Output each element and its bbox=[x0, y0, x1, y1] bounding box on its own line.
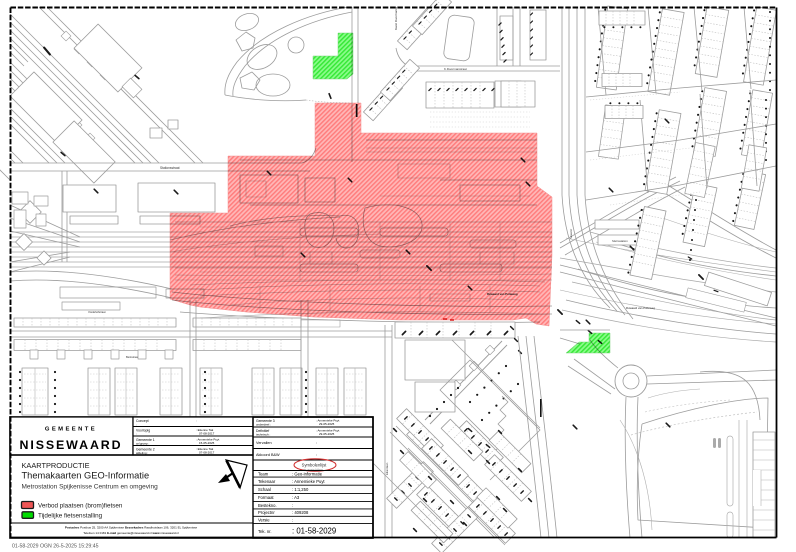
svg-text:NISSEWAARD: NISSEWAARD bbox=[20, 438, 123, 452]
svg-text:Postadres Postbus 25, 3200 AA: Postadres Postbus 25, 3200 AA Spijkeniss… bbox=[65, 526, 198, 530]
svg-text:: 01-58-2029: : 01-58-2029 bbox=[292, 527, 336, 536]
svg-text:GEMEENTE: GEMEENTE bbox=[45, 427, 97, 433]
svg-text:Team: Team bbox=[258, 471, 269, 476]
svg-text::: : bbox=[316, 441, 317, 445]
svg-text:Themakaarten GEO-Informatie: Themakaarten GEO-Informatie bbox=[22, 471, 150, 481]
svg-text:Vervallen: Vervallen bbox=[256, 441, 272, 445]
svg-text:: 1:1,250: : 1:1,250 bbox=[292, 487, 309, 492]
svg-text:Tijdelijke fietsenstalling: Tijdelijke fietsenstalling bbox=[38, 513, 103, 520]
svg-text:Bestekno.: Bestekno. bbox=[258, 503, 277, 508]
svg-text:Voorlopig: Voorlopig bbox=[136, 429, 150, 433]
svg-text:K.Doormanstraat: K.Doormanstraat bbox=[444, 67, 467, 71]
svg-text:Metrostation: Metrostation bbox=[612, 239, 628, 243]
svg-text:Formaat: Formaat bbox=[258, 495, 274, 500]
svg-text::: : bbox=[292, 518, 293, 523]
svg-text:Tekenaar: Tekenaar bbox=[258, 479, 276, 484]
svg-text:onderdeel :: onderdeel : bbox=[256, 423, 271, 427]
svg-text:cn/groep :: cn/groep : bbox=[136, 442, 150, 446]
svg-text:Karel Doormanstr: Karel Doormanstr bbox=[394, 6, 398, 30]
svg-text:KAARTPRODUCTIE: KAARTPRODUCTIE bbox=[22, 461, 90, 470]
svg-text:Concept: Concept bbox=[136, 419, 149, 423]
svg-text:: A3: : A3 bbox=[292, 495, 300, 500]
svg-text:Metrostation Spijkenisse Centr: Metrostation Spijkenisse Centrum en omge… bbox=[22, 484, 159, 491]
svg-text:07-08-2017: 07-08-2017 bbox=[199, 451, 215, 455]
svg-text:Ruwaard van Putteweg: Ruwaard van Putteweg bbox=[487, 292, 518, 296]
svg-text:Eikenlaan: Eikenlaan bbox=[385, 462, 389, 475]
svg-text:Schaal: Schaal bbox=[258, 487, 271, 492]
svg-text:29-05-2025: 29-05-2025 bbox=[319, 422, 335, 426]
svg-text:Projectnr: Projectnr bbox=[258, 510, 275, 515]
svg-text:Nieuwstr: Nieuwstr bbox=[569, 229, 573, 239]
svg-text::: : bbox=[316, 453, 317, 457]
svg-text:Versie: Versie bbox=[258, 518, 270, 523]
svg-text:Vredehofstraat: Vredehofstraat bbox=[88, 310, 106, 314]
svg-text:Telefoon 14 0181 E-mail gemee: Telefoon 14 0181 E-mail gemeente@nissewa… bbox=[83, 531, 179, 535]
svg-text:: Annemieke Puyt: : Annemieke Puyt bbox=[292, 479, 325, 484]
svg-text:07-08-2017: 07-08-2017 bbox=[199, 432, 215, 436]
svg-text:Verbod plaatsen (brom)fietsen: Verbod plaatsen (brom)fietsen bbox=[38, 503, 123, 510]
svg-text:29-05-2025: 29-05-2025 bbox=[319, 432, 335, 436]
svg-text:: 409208: : 409208 bbox=[292, 510, 309, 515]
svg-text:15-05-2025: 15-05-2025 bbox=[199, 441, 215, 445]
svg-text:Tek. nr.: Tek. nr. bbox=[258, 529, 272, 534]
svg-text:: Geo-informatie: : Geo-informatie bbox=[292, 471, 323, 476]
svg-text:Symbolenlijst: Symbolenlijst bbox=[302, 463, 328, 468]
svg-text:01-58-2029 OGN 26-5-2025 15:29: 01-58-2029 OGN 26-5-2025 15:29:45 bbox=[12, 544, 99, 550]
svg-text:Ruwaard van Putteweg: Ruwaard van Putteweg bbox=[626, 306, 655, 310]
svg-text:technisch :: technisch : bbox=[256, 433, 271, 437]
svg-text:Berkstraat: Berkstraat bbox=[126, 355, 139, 359]
svg-text:Akkoord B&W: Akkoord B&W bbox=[256, 453, 280, 457]
svg-text:Stationsstraat: Stationsstraat bbox=[160, 166, 180, 170]
svg-text::: : bbox=[292, 503, 293, 508]
